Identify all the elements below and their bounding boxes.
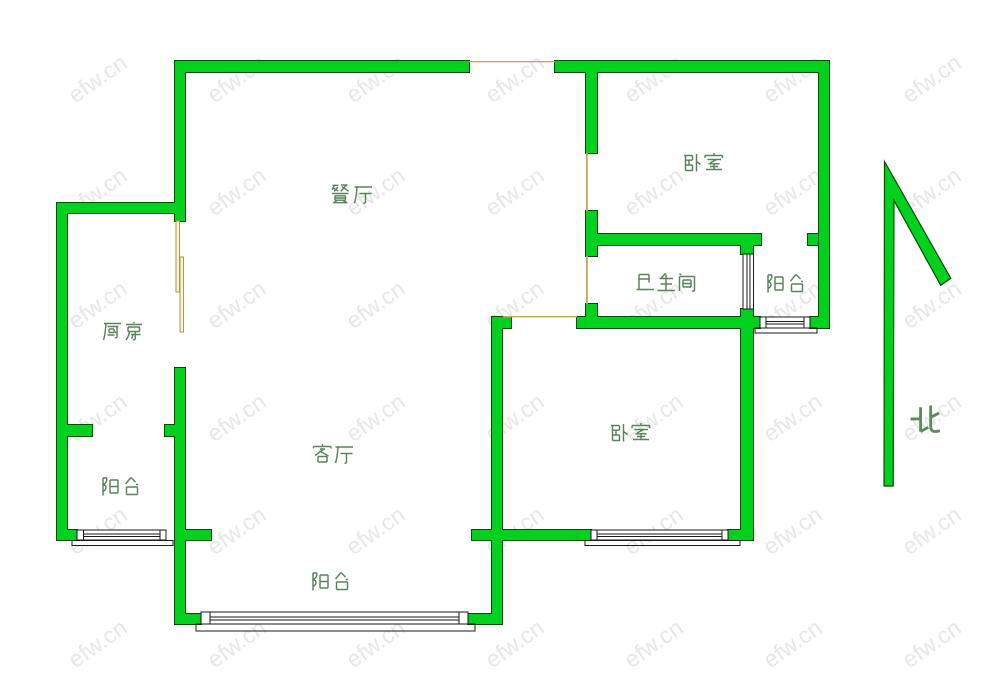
svg-text:efw.cn: efw.cn <box>619 388 687 447</box>
svg-text:efw.cn: efw.cn <box>758 162 826 221</box>
svg-text:efw.cn: efw.cn <box>341 388 409 447</box>
svg-text:efw.cn: efw.cn <box>480 388 548 447</box>
svg-text:efw.cn: efw.cn <box>341 501 409 560</box>
svg-text:efw.cn: efw.cn <box>619 614 687 673</box>
svg-text:efw.cn: efw.cn <box>758 614 826 673</box>
svg-text:efw.cn: efw.cn <box>63 49 131 108</box>
svg-text:efw.cn: efw.cn <box>758 388 826 447</box>
svg-text:efw.cn: efw.cn <box>202 49 270 108</box>
svg-text:efw.cn: efw.cn <box>480 275 548 334</box>
svg-text:efw.cn: efw.cn <box>619 49 687 108</box>
svg-text:efw.cn: efw.cn <box>897 49 965 108</box>
svg-text:efw.cn: efw.cn <box>480 162 548 221</box>
svg-text:efw.cn: efw.cn <box>897 275 965 334</box>
svg-text:efw.cn: efw.cn <box>897 501 965 560</box>
svg-text:efw.cn: efw.cn <box>202 275 270 334</box>
svg-text:efw.cn: efw.cn <box>619 162 687 221</box>
svg-text:efw.cn: efw.cn <box>202 501 270 560</box>
svg-text:efw.cn: efw.cn <box>202 388 270 447</box>
svg-text:efw.cn: efw.cn <box>63 388 131 447</box>
svg-text:efw.cn: efw.cn <box>897 614 965 673</box>
svg-text:efw.cn: efw.cn <box>341 49 409 108</box>
svg-text:efw.cn: efw.cn <box>63 614 131 673</box>
svg-text:efw.cn: efw.cn <box>758 501 826 560</box>
svg-text:efw.cn: efw.cn <box>63 275 131 334</box>
svg-text:efw.cn: efw.cn <box>202 162 270 221</box>
svg-text:efw.cn: efw.cn <box>341 162 409 221</box>
svg-text:efw.cn: efw.cn <box>758 49 826 108</box>
svg-text:efw.cn: efw.cn <box>480 49 548 108</box>
svg-text:efw.cn: efw.cn <box>341 275 409 334</box>
